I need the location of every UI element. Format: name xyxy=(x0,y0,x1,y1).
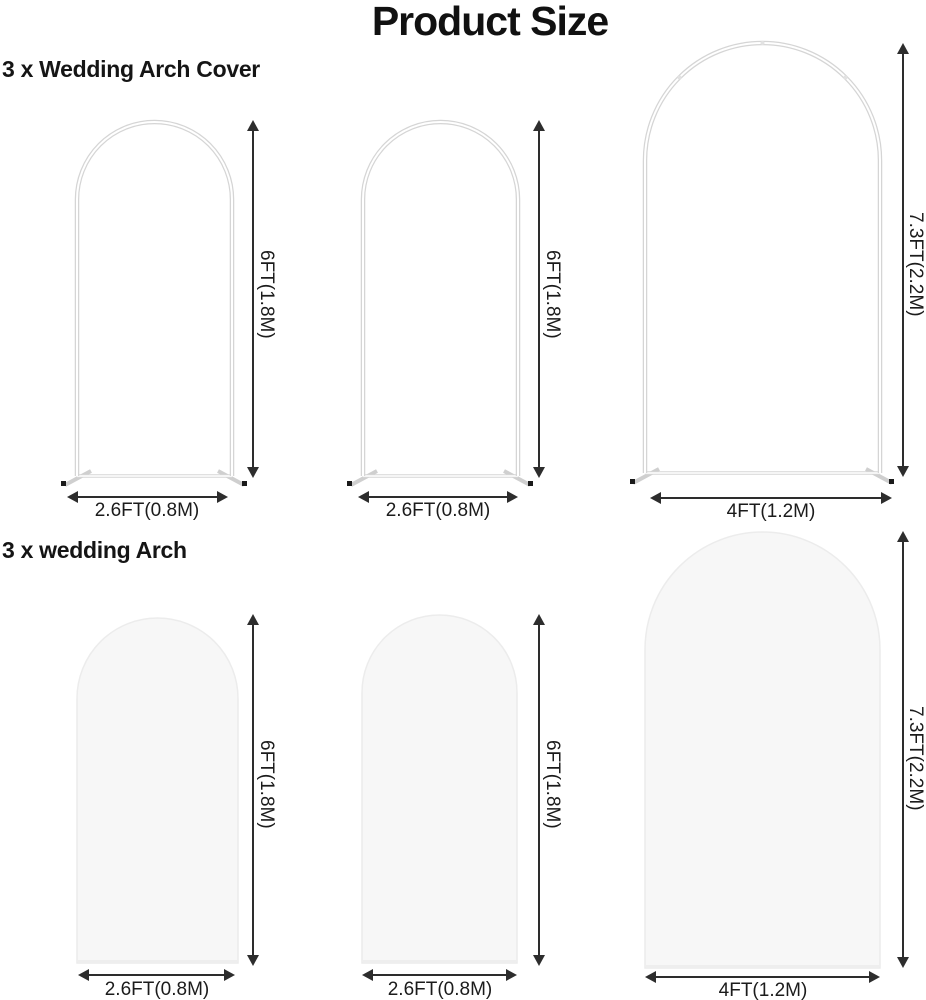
section-label-arch-cover: 3 x Wedding Arch Cover xyxy=(2,56,260,83)
tube-joint-mark xyxy=(844,76,848,80)
width-label: 2.6FT(0.8M) xyxy=(338,501,538,520)
foot-tip-left xyxy=(61,481,66,486)
height-label: 7.3FT(2.2M) xyxy=(906,212,925,317)
arrow-line xyxy=(367,496,509,498)
arrow-line xyxy=(252,129,254,469)
arrow-line xyxy=(371,974,508,976)
cover-shape xyxy=(362,615,517,963)
arch-frame-small-1 xyxy=(50,108,260,498)
arrowhead-down-icon xyxy=(533,955,545,966)
arrow-line xyxy=(252,623,254,957)
height-label: 6FT(1.8M) xyxy=(543,250,562,339)
arrowhead-down-icon xyxy=(247,955,259,966)
foot-tip-right xyxy=(528,481,533,486)
arrow-line xyxy=(654,976,871,978)
cover-shape xyxy=(77,618,238,963)
frame-tube-outline xyxy=(77,122,232,476)
width-label: 4FT(1.2M) xyxy=(663,981,863,1000)
arrowhead-down-icon xyxy=(897,466,909,477)
arch-cover-small-2 xyxy=(355,610,535,970)
width-label: 2.6FT(0.8M) xyxy=(340,980,540,999)
arrow-line xyxy=(538,623,540,957)
width-label: 2.6FT(0.8M) xyxy=(57,980,257,999)
arrowhead-right-icon xyxy=(869,971,880,983)
frame-tube-highlight xyxy=(77,122,232,476)
height-label: 7.3FT(2.2M) xyxy=(906,706,925,811)
width-label: 2.6FT(0.8M) xyxy=(47,501,247,520)
foot-tip-left xyxy=(630,479,635,484)
arrowhead-down-icon xyxy=(247,467,259,478)
frame-tube-highlight xyxy=(645,43,880,473)
arrow-line xyxy=(902,540,904,959)
frame-tube-outline xyxy=(363,122,518,476)
width-label: 4FT(1.2M) xyxy=(671,502,871,521)
foot-tip-left xyxy=(347,481,352,486)
arch-frame-small-2 xyxy=(336,108,546,498)
tube-joint-mark xyxy=(678,76,682,80)
frame-tube-highlight xyxy=(363,122,518,476)
arrow-line xyxy=(76,496,219,498)
height-label: 6FT(1.8M) xyxy=(257,250,276,339)
arch-cover-small-1 xyxy=(70,610,250,970)
arrow-line xyxy=(538,129,540,469)
arch-cover-large xyxy=(638,525,898,975)
tube-joint-mark xyxy=(761,41,765,45)
cover-shape xyxy=(645,532,880,968)
arrowhead-down-icon xyxy=(897,957,909,968)
arrowhead-right-icon xyxy=(881,492,892,504)
height-label: 6FT(1.8M) xyxy=(543,740,562,829)
foot-tip-right xyxy=(242,481,247,486)
arrowhead-down-icon xyxy=(533,467,545,478)
frame-tube-outline xyxy=(645,43,880,473)
arrow-line xyxy=(659,497,883,499)
section-label-wedding-arch: 3 x wedding Arch xyxy=(2,537,187,564)
arrow-line xyxy=(902,52,904,468)
arrow-line xyxy=(87,974,226,976)
foot-tip-right xyxy=(889,479,894,484)
product-size-diagram: Product Size 3 x Wedding Arch Cover 3 x … xyxy=(0,0,926,1000)
arch-frame-large xyxy=(630,30,910,495)
height-label: 6FT(1.8M) xyxy=(257,740,276,829)
